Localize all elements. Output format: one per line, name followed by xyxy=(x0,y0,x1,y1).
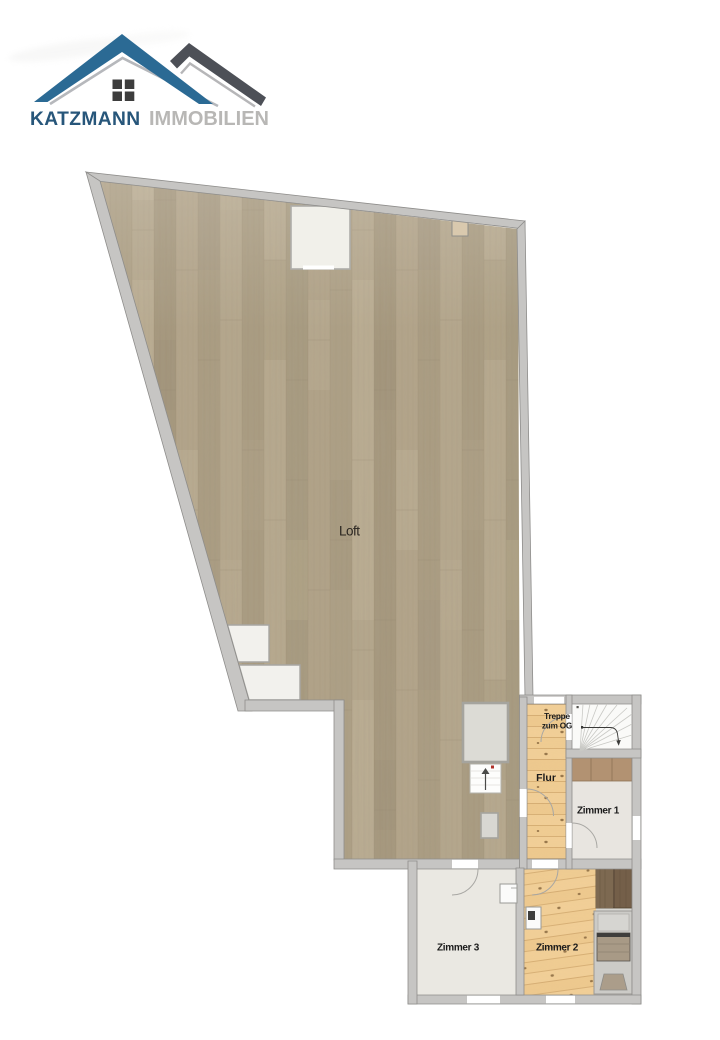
svg-text:IMMOBILIEN: IMMOBILIEN xyxy=(149,108,269,130)
svg-text:Zimmer 3: Zimmer 3 xyxy=(437,943,480,954)
svg-text:Zimmer 1: Zimmer 1 xyxy=(577,806,620,817)
svg-text:Loft: Loft xyxy=(339,524,360,539)
svg-text:Zimmer 2: Zimmer 2 xyxy=(536,943,579,954)
svg-text:Flur: Flur xyxy=(536,772,556,784)
svg-text:KATZMANN: KATZMANN xyxy=(30,109,140,130)
svg-text:zum OG: zum OG xyxy=(542,722,572,731)
svg-text:Treppe: Treppe xyxy=(544,712,570,721)
